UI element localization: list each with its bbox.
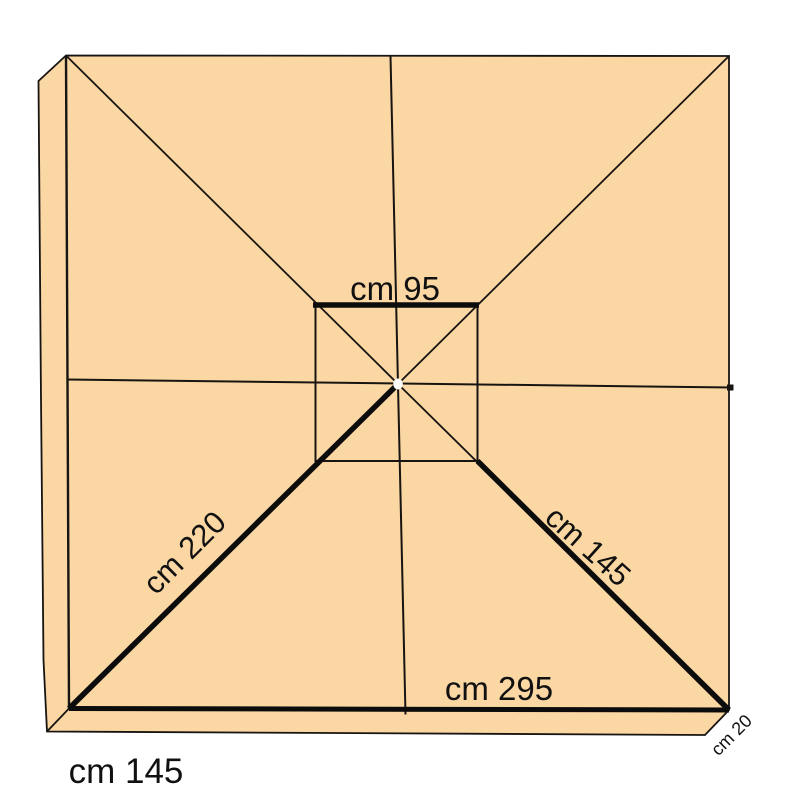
- svg-text:cm 145: cm 145: [69, 752, 184, 791]
- svg-text:cm 295: cm 295: [445, 670, 553, 707]
- svg-text:cm 95: cm 95: [350, 270, 440, 307]
